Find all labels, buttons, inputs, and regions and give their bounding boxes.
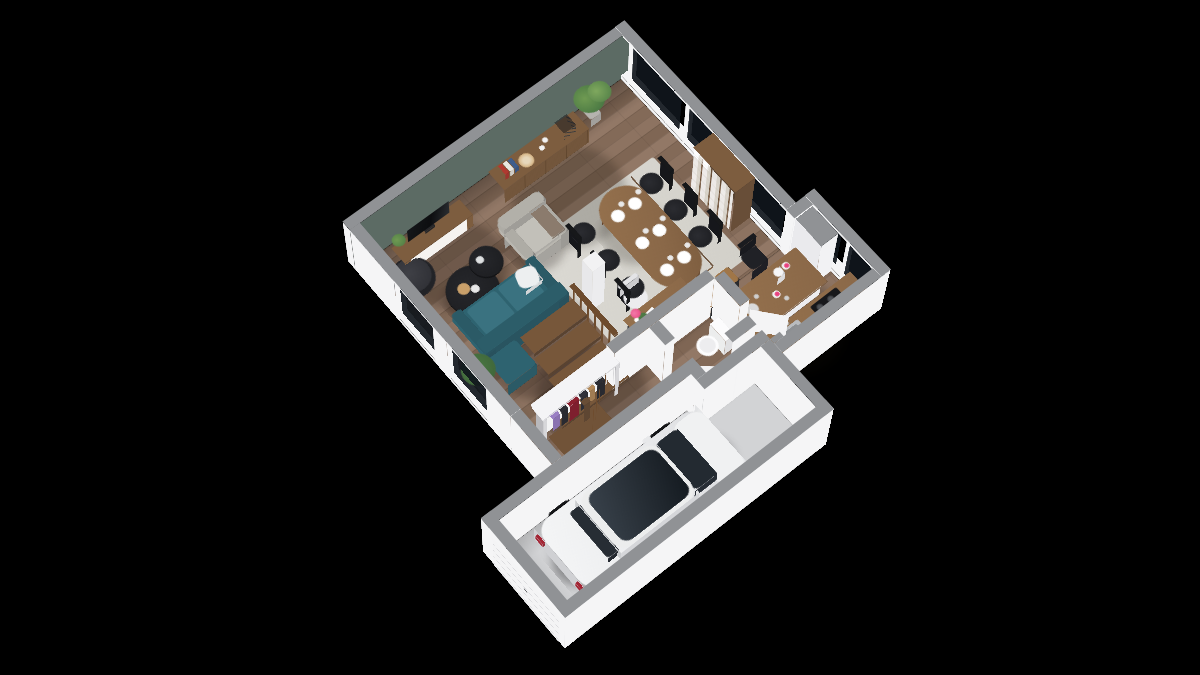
floorplan-render-canvas (0, 0, 1200, 675)
dining-chair-back-1-face-s (577, 237, 581, 259)
camera-viewport (0, 0, 1200, 675)
